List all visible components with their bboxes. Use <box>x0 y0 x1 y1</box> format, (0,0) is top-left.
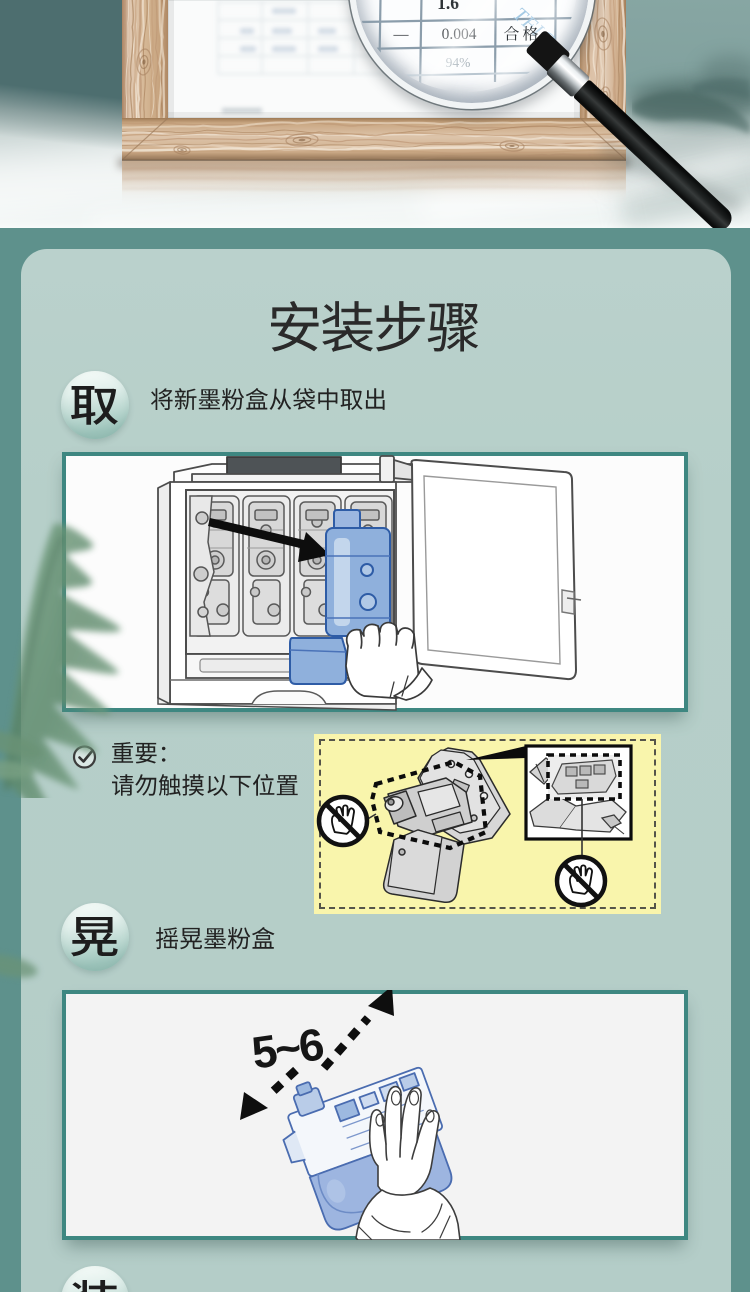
svg-text:5~6: 5~6 <box>249 1018 327 1078</box>
